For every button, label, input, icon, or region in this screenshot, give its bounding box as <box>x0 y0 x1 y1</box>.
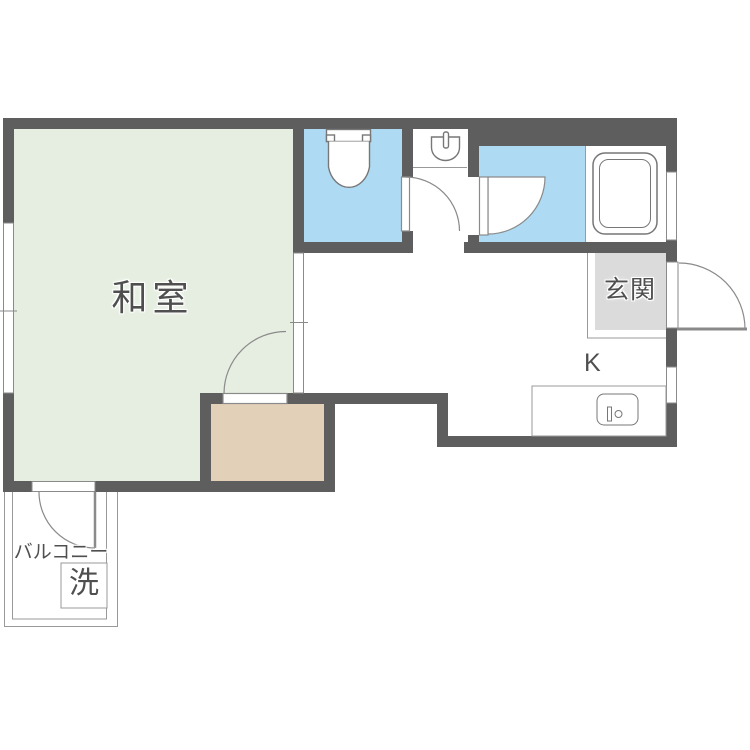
room-label-washitsu: 和室 <box>60 280 245 316</box>
wall-closet-right <box>324 393 335 492</box>
door-swing-icon-toilet <box>406 177 460 231</box>
toilet-door-leaf <box>402 177 410 231</box>
wall-washitsu-toilet <box>293 118 304 253</box>
bathtub-icon <box>593 153 657 234</box>
balcony-door-opening <box>32 482 95 492</box>
room-closet <box>211 404 324 481</box>
wall-right-3 <box>666 328 677 367</box>
room-label-laundry: 洗 <box>61 569 107 599</box>
window-icon-right-upper <box>667 172 677 240</box>
window-icon-left <box>4 223 14 393</box>
kitchen-sink-icon <box>597 394 638 425</box>
wall-closet-top-east <box>287 393 448 404</box>
wall-right-1 <box>666 118 677 172</box>
wall-right-4 <box>666 403 677 447</box>
hand-sink-icon <box>432 132 460 161</box>
floorplan-canvas: 和室 玄関 K バルコニー 洗 <box>0 0 750 750</box>
door-swing-icon-balcony <box>39 492 95 548</box>
kitchen-counter <box>532 386 666 436</box>
front-door-opening <box>667 262 679 328</box>
wall-bath-west-upper <box>468 129 479 177</box>
window-icon-right-lower <box>667 367 677 403</box>
room-label-balcony: バルコニー <box>5 543 117 562</box>
room-label-genkan: 玄関 <box>594 278 666 303</box>
wall-south-of-bath <box>464 242 677 253</box>
wall-closet-left <box>200 393 211 492</box>
floorplan-drawing <box>0 0 750 750</box>
wall-right-2 <box>666 240 677 262</box>
wall-left-upper <box>3 118 14 223</box>
wall-bottom-east <box>437 436 677 447</box>
wall-top <box>3 118 677 129</box>
toilet-icon <box>327 130 371 188</box>
wall-toilet-east-upper <box>402 118 413 177</box>
wall-bath-top-band <box>468 129 677 146</box>
wall-south-of-toilet <box>293 242 410 253</box>
wall-left-lower <box>3 393 14 492</box>
room-label-kitchen: K <box>584 351 601 376</box>
door-swing-icon-front <box>679 263 745 329</box>
closet-door-leaf <box>223 394 287 404</box>
bathroom-door-leaf <box>480 177 489 235</box>
wall-bath-west-lower <box>468 235 479 242</box>
